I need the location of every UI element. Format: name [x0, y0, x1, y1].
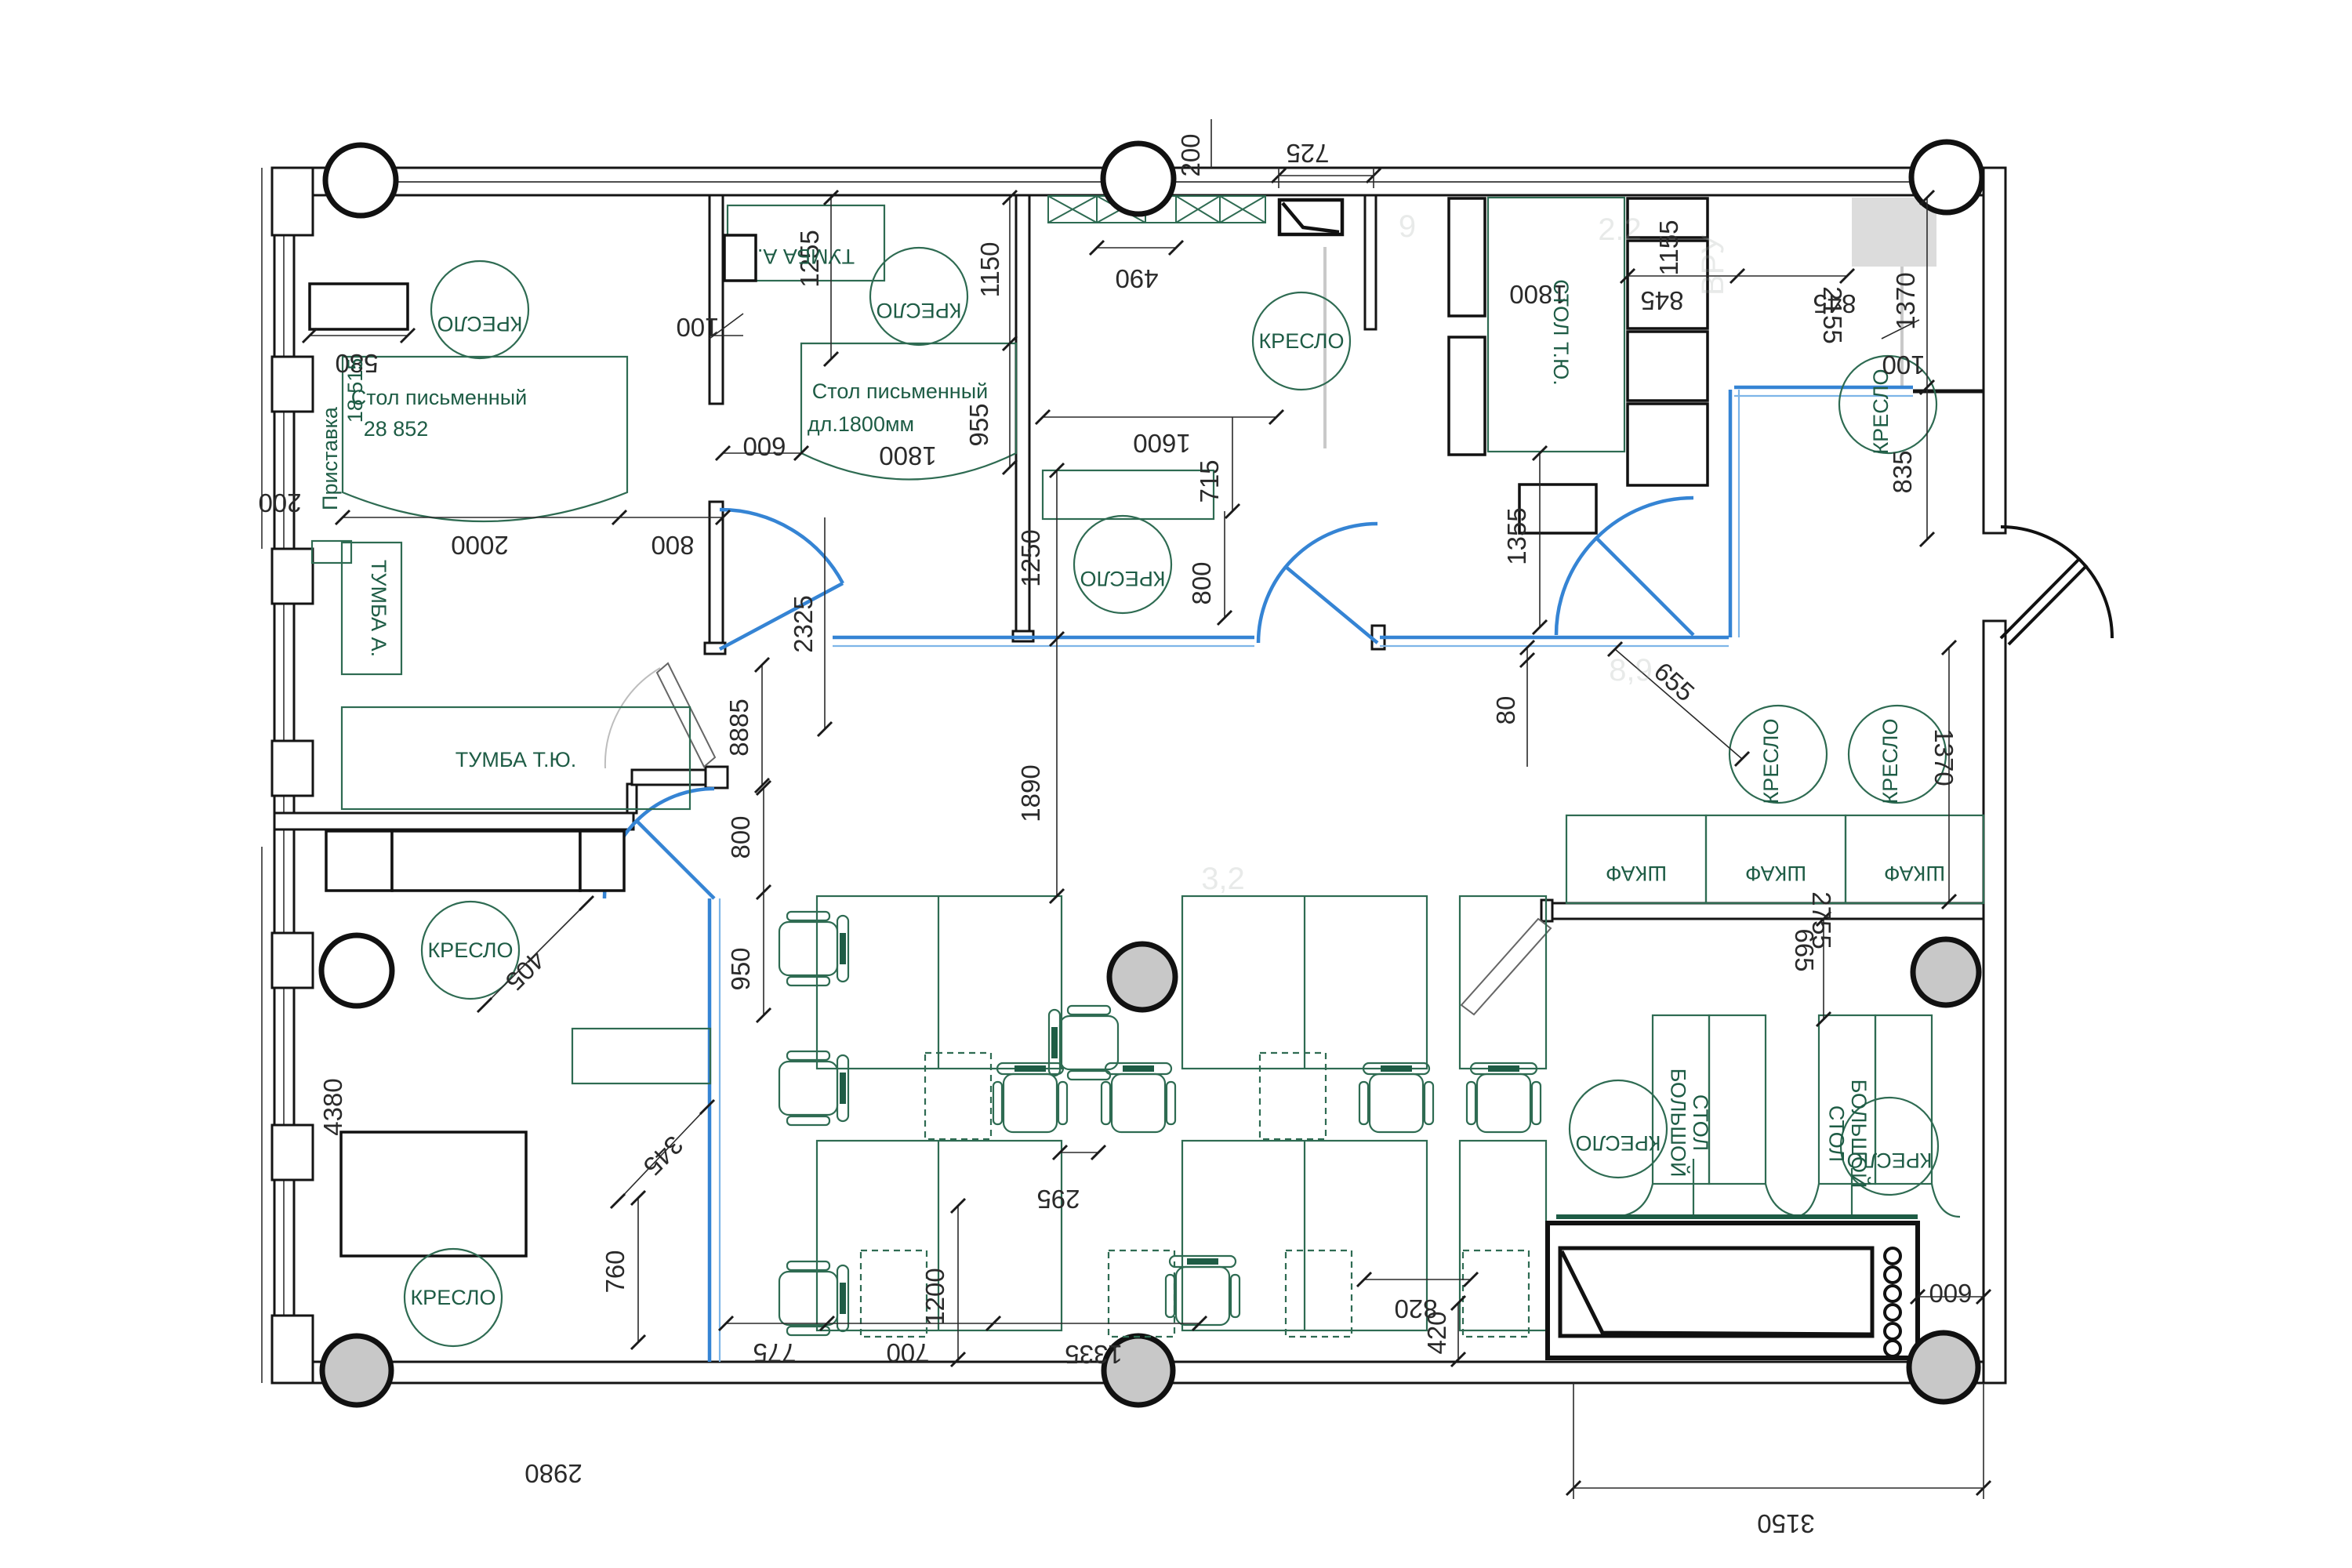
dim-845: 845 — [1640, 286, 1683, 315]
dim-715: 715 — [1195, 459, 1224, 503]
dim-725: 725 — [1286, 139, 1329, 168]
partitions — [274, 195, 1984, 921]
label-Стол письменный: Стол письменный — [812, 379, 988, 403]
office-chair — [1467, 1063, 1541, 1132]
kreslo-label: КРЕСЛО — [1869, 368, 1893, 454]
shkaf-label: ШКАФ — [1745, 862, 1806, 885]
office-chair — [1166, 1256, 1240, 1325]
dim-200: 200 — [1176, 133, 1205, 176]
shkaf-cell — [1566, 815, 1706, 903]
column — [322, 1336, 391, 1405]
dim-4380: 4380 — [318, 1078, 347, 1135]
dim-1200: 1200 — [920, 1268, 949, 1325]
kreslo-circle — [870, 248, 967, 345]
label-СТОЛ Т.Ю.: СТОЛ Т.Ю. — [1549, 279, 1573, 386]
dim-760: 760 — [601, 1250, 630, 1293]
column — [325, 145, 396, 216]
label-БОЛЬШОЙ: БОЛЬШОЙСТОЛ — [1824, 1080, 1871, 1189]
label-Приставка: Приставка — [318, 406, 342, 510]
label-дл.1800мм: дл.1800мм — [808, 412, 914, 436]
dim-2980: 2980 — [524, 1459, 582, 1488]
dim-420: 420 — [1422, 1311, 1451, 1354]
office-chair — [779, 912, 848, 985]
kreslo-label: КРЕСЛО — [1759, 718, 1783, 804]
dim-295: 295 — [1036, 1185, 1080, 1214]
pedestals — [861, 1053, 1529, 1337]
faint-label: 2.2 — [1598, 212, 1642, 247]
dim-1250: 1250 — [1016, 529, 1045, 586]
kreslo-label: КРЕСЛО — [437, 312, 522, 336]
dim-100: 100 — [1882, 350, 1925, 379]
dim-835: 835 — [1888, 450, 1917, 493]
kreslo-label: КРЕСЛО — [1575, 1131, 1661, 1155]
office-chair — [779, 1261, 848, 1335]
dim-100: 100 — [676, 313, 719, 342]
pedestal — [925, 1053, 991, 1139]
dim-1370: 1370 — [1929, 728, 1958, 786]
label-Стол письменный: Стол письменный — [351, 386, 527, 409]
label-ТУМБА А.: ТУМБА А. — [367, 560, 390, 657]
column — [321, 935, 392, 1006]
office-chair — [1359, 1063, 1433, 1132]
label-СТОЛ: СТОЛБОЛЬШОЙ — [1666, 1069, 1712, 1178]
faint-label: 8,9 — [1609, 653, 1653, 688]
dim-800: 800 — [1187, 561, 1216, 604]
label-28 852: 28 852 — [364, 417, 429, 441]
wall-niche — [1852, 198, 1936, 267]
dim-345: 345 — [638, 1131, 689, 1181]
dim-1890: 1890 — [1016, 764, 1045, 822]
dim-490: 490 — [1115, 264, 1158, 293]
column — [1909, 1333, 1978, 1402]
dim-80: 80 — [1491, 696, 1520, 725]
label-18 515: 18 515 — [343, 358, 367, 423]
kreslo-label: КРЕСЛО — [1080, 567, 1165, 590]
dim-200: 200 — [258, 488, 301, 517]
kreslo-label: КРЕСЛО — [410, 1286, 495, 1309]
pedestal — [1260, 1053, 1326, 1139]
dim-2000: 2000 — [451, 531, 508, 560]
shkaf-row: ШКАФШКАФШКАФ — [1566, 815, 1984, 903]
faint-label: 9 — [1399, 209, 1416, 244]
dim-8885: 8885 — [724, 699, 753, 756]
kreslo-label: КРЕСЛО — [427, 938, 513, 962]
dim-3150: 3150 — [1757, 1509, 1814, 1538]
faint-label: ВРУ — [1696, 234, 1730, 295]
dim-800: 800 — [726, 815, 755, 858]
big-tables — [1612, 1015, 1960, 1217]
electrical-panel-symbol — [1279, 200, 1342, 234]
dim-1335: 1335 — [1065, 1340, 1122, 1369]
column — [1103, 143, 1174, 214]
faint-label: 3,2 — [1201, 862, 1245, 896]
dim-700: 700 — [886, 1338, 929, 1367]
dim-655: 655 — [1649, 656, 1700, 706]
dim-665: 665 — [1790, 928, 1819, 971]
office-chair — [779, 1051, 848, 1125]
label-ТУМБА А.: ТУМБА А. — [757, 245, 855, 268]
shkaf-cell — [1846, 815, 1984, 903]
shkaf-label: ШКАФ — [1884, 862, 1945, 885]
dim-800: 800 — [651, 531, 694, 560]
floor-plan-canvas: ШКАФШКАФШКАФ КРЕСЛОКРЕСЛОКРЕСЛОКРЕСЛОКРЕ… — [0, 0, 2352, 1568]
label-ТУМБА Т.Ю.: ТУМБА Т.Ю. — [456, 748, 577, 771]
dim-1600: 1600 — [1133, 429, 1190, 458]
dim-1370: 1370 — [1891, 272, 1920, 329]
office-chair — [1102, 1063, 1175, 1132]
dim-600: 600 — [742, 432, 786, 461]
kreslo-circle — [1074, 516, 1171, 613]
reception-desk — [1548, 1223, 1918, 1358]
shkaf-cell — [1706, 815, 1846, 903]
kreslo-label: КРЕСЛО — [1878, 718, 1902, 804]
office-chair — [993, 1063, 1067, 1132]
dim-775: 775 — [753, 1338, 796, 1367]
pedestal — [1286, 1250, 1352, 1337]
shkaf-label: ШКАФ — [1606, 862, 1667, 885]
kreslo-label: КРЕСЛО — [876, 299, 961, 322]
kreslo-label: КРЕСЛО — [1258, 329, 1344, 353]
dim-2325: 2325 — [789, 595, 818, 652]
dim-1155: 1155 — [1654, 220, 1683, 276]
dim-955: 955 — [964, 403, 993, 446]
dim-1800: 1800 — [879, 441, 936, 470]
dim-1355: 1355 — [1502, 507, 1531, 564]
kreslo-circle — [431, 261, 528, 358]
exit-door-right — [2001, 527, 2112, 644]
office-chair — [1049, 1006, 1118, 1080]
pedestal — [1463, 1250, 1529, 1337]
dim-2155: 2155 — [1818, 286, 1847, 343]
column — [1913, 939, 1979, 1005]
dim-1150: 1150 — [975, 242, 1004, 298]
dim-600: 600 — [1929, 1279, 1972, 1308]
column — [1109, 944, 1175, 1010]
dim-950: 950 — [726, 947, 755, 990]
